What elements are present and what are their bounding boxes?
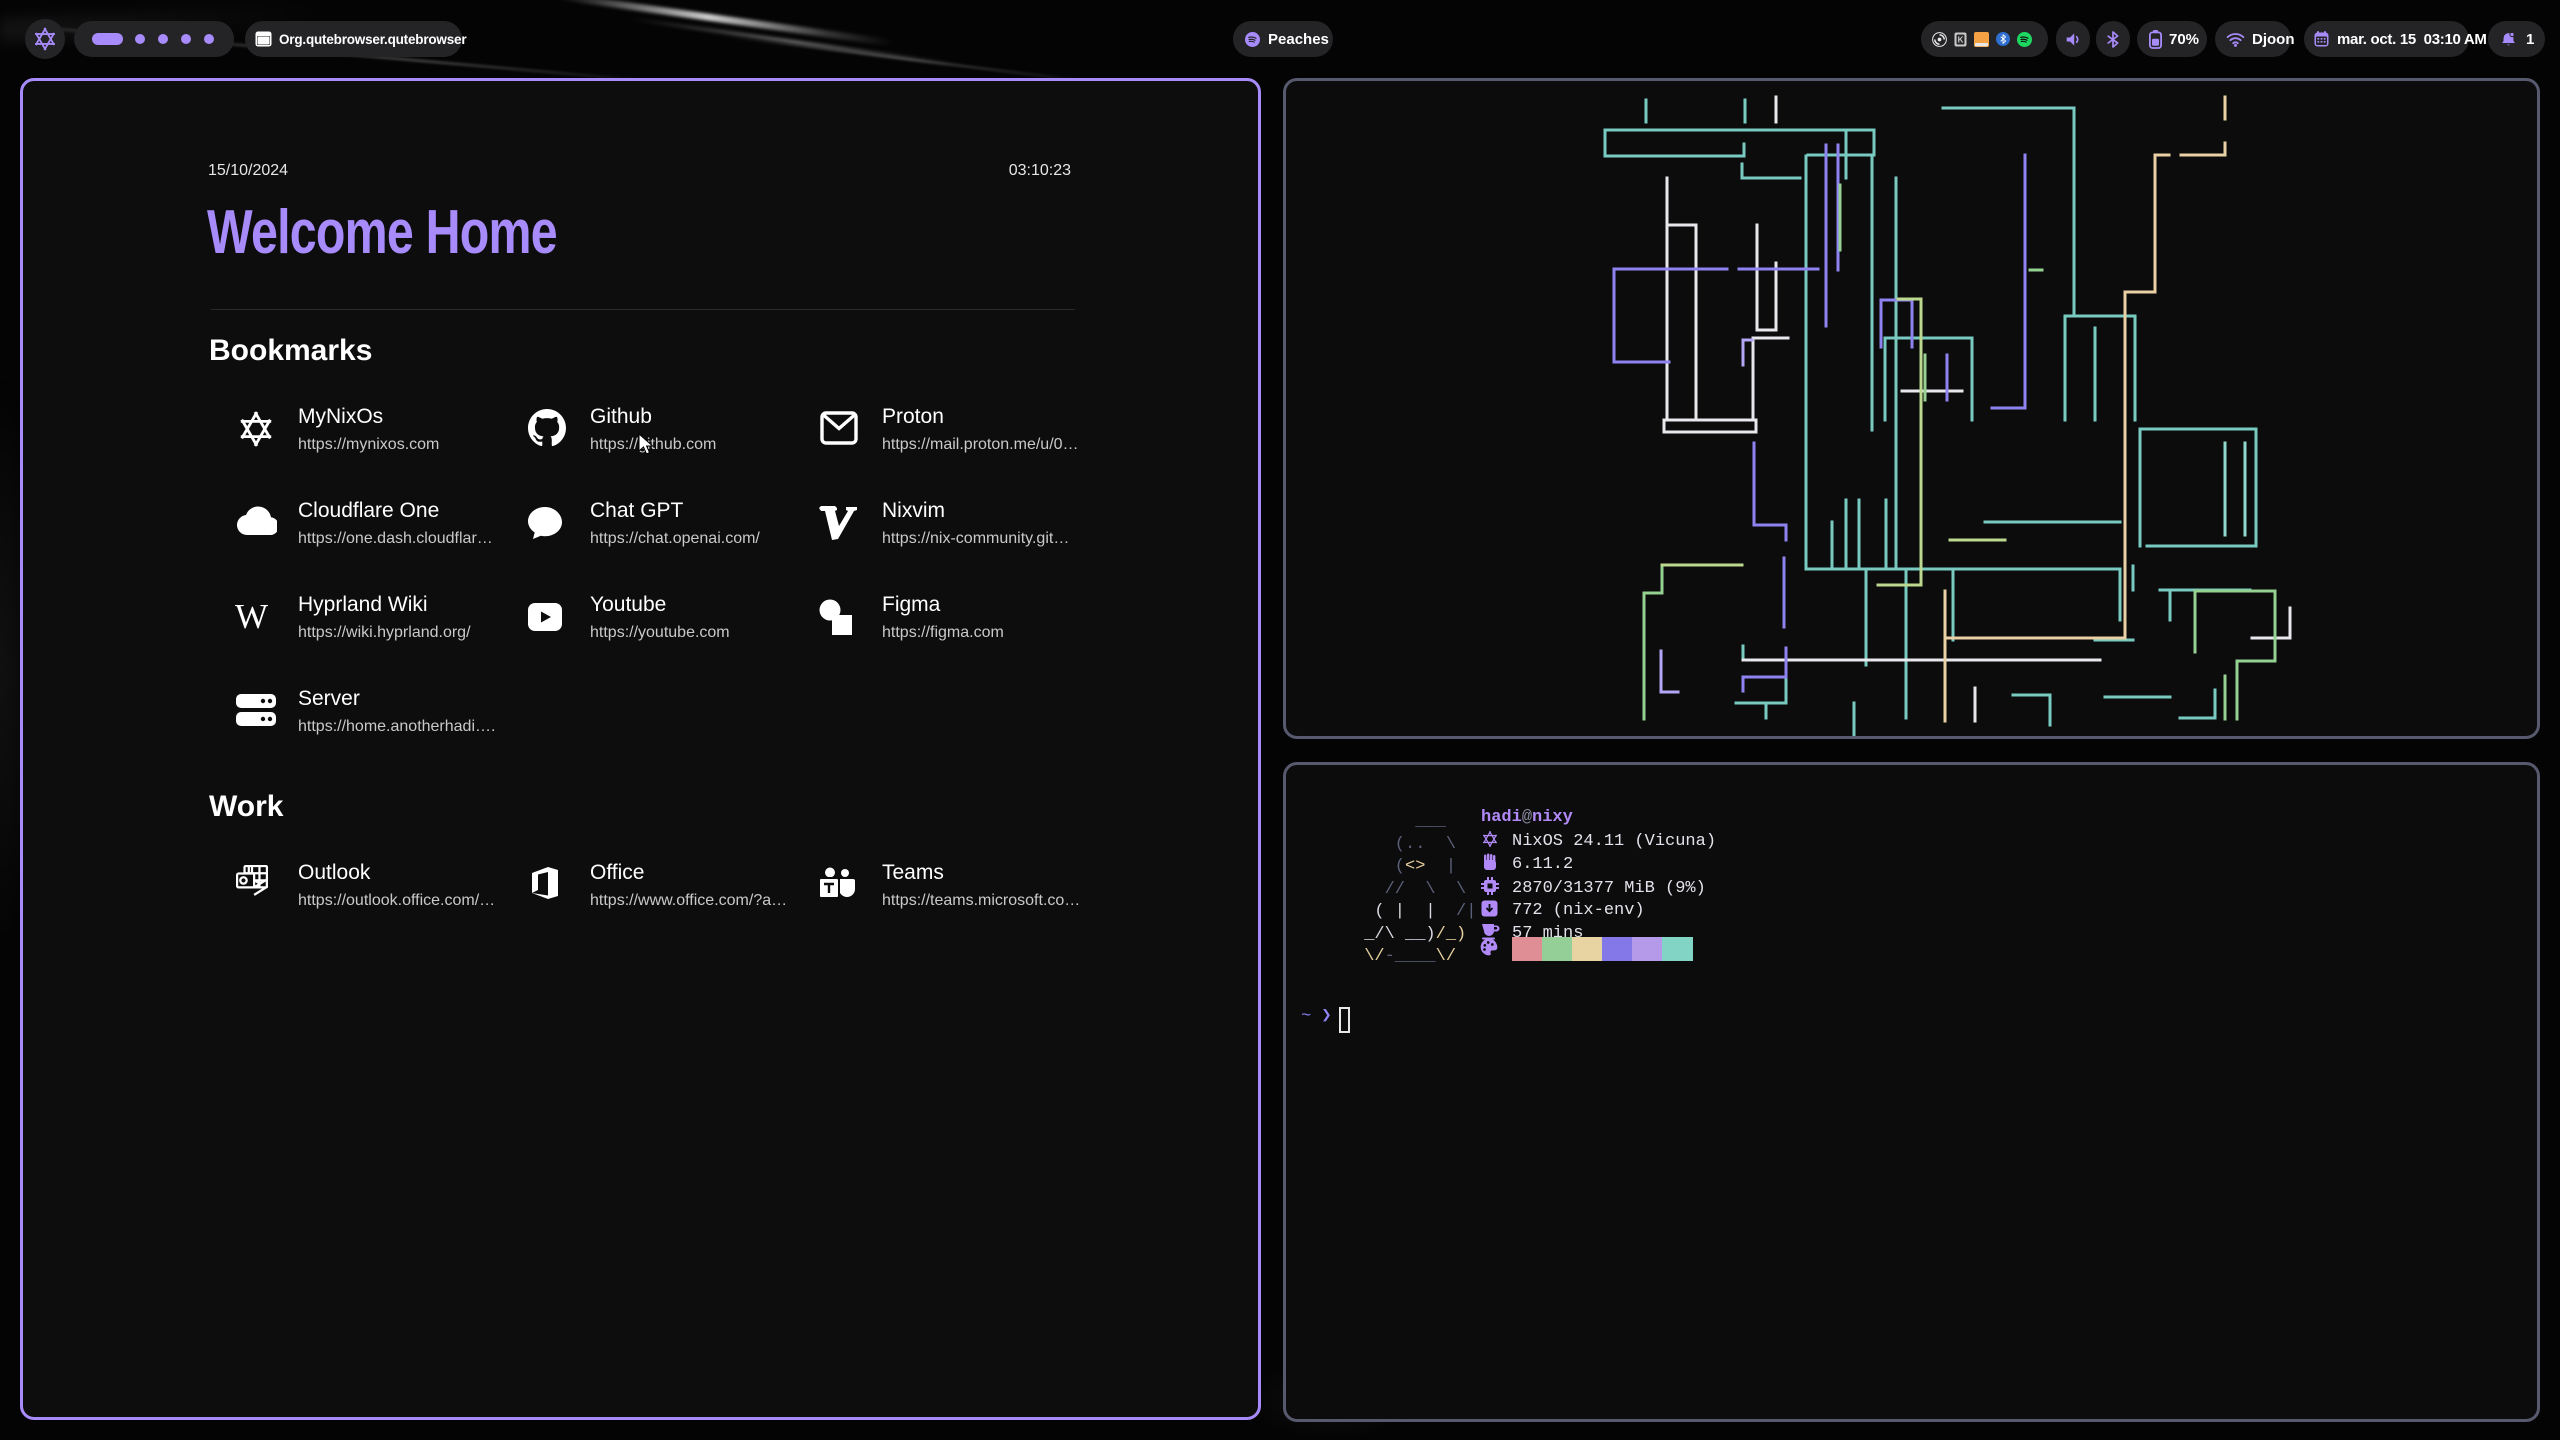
svg-text:K: K	[1958, 35, 1964, 44]
